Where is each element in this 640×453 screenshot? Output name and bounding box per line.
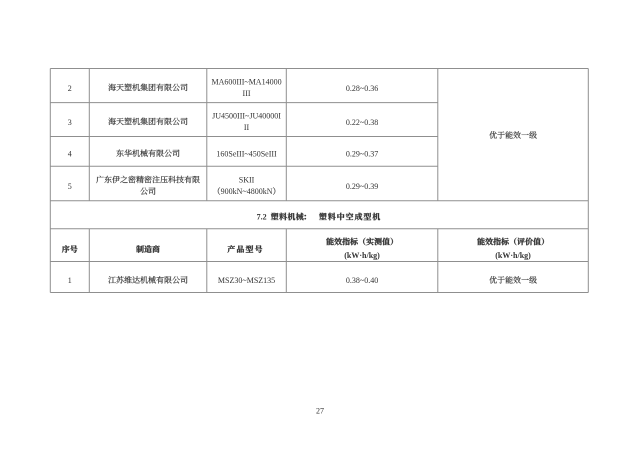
svg-text:3: 3 [68,118,72,127]
svg-text:0.22~0.38: 0.22~0.38 [346,118,378,127]
svg-text:MA600III~MA14000: MA600III~MA14000 [211,78,281,87]
svg-text:4: 4 [68,150,72,159]
svg-text:(kW·h/kg): (kW·h/kg) [344,251,380,260]
svg-text:160SeIII~450SeIII: 160SeIII~450SeIII [216,150,277,159]
svg-text:900kN~4800kN: 900kN~4800kN [221,187,273,196]
svg-text:II: II [244,123,250,132]
svg-text:0.28~0.36: 0.28~0.36 [346,84,378,93]
svg-text:0.38~0.40: 0.38~0.40 [346,276,378,285]
svg-text:1: 1 [68,276,72,285]
svg-text:0.29~0.37: 0.29~0.37 [346,150,378,159]
svg-text:(kW·h/kg): (kW·h/kg) [495,251,531,260]
svg-text:SKII: SKII [239,176,255,185]
svg-text:27: 27 [316,407,324,416]
svg-text:JU4500III~JU40000I: JU4500III~JU40000I [212,112,281,121]
svg-text:2: 2 [68,84,72,93]
svg-text:III: III [243,89,251,98]
svg-text:MSZ30~MSZ135: MSZ30~MSZ135 [218,276,275,285]
svg-text:7.2: 7.2 [257,213,267,222]
svg-text:0.29~0.39: 0.29~0.39 [346,182,378,191]
svg-text:5: 5 [68,182,72,191]
